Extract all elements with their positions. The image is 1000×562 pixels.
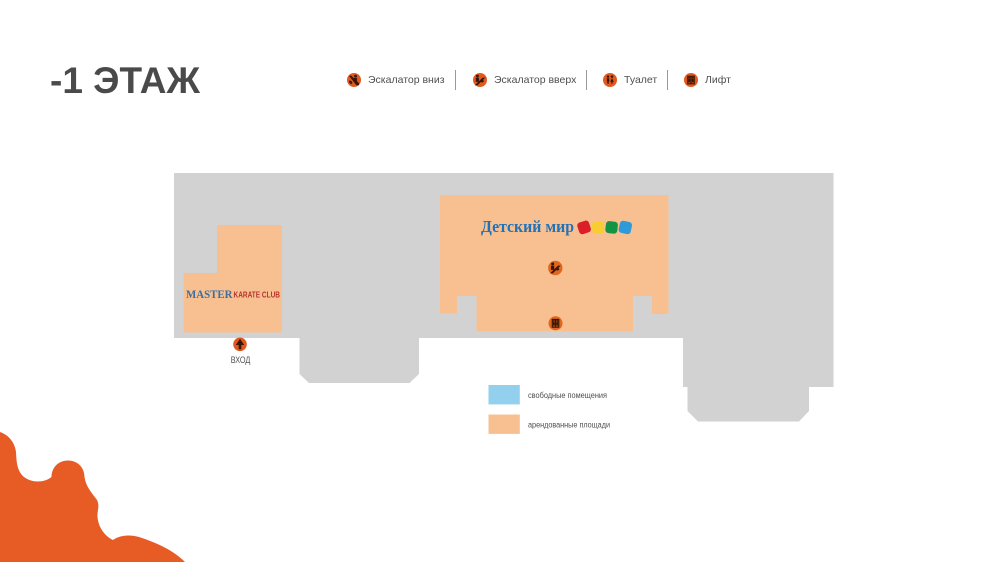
svg-text:MASTER: MASTER (186, 289, 233, 301)
svg-text:арендованные площади: арендованные площади (528, 420, 610, 429)
svg-text:KARATE CLUB: KARATE CLUB (234, 290, 281, 300)
svg-text:Детский мир: Детский мир (481, 217, 574, 236)
svg-text:свободные помещения: свободные помещения (528, 391, 607, 400)
svg-text:ВХОД: ВХОД (231, 355, 251, 366)
